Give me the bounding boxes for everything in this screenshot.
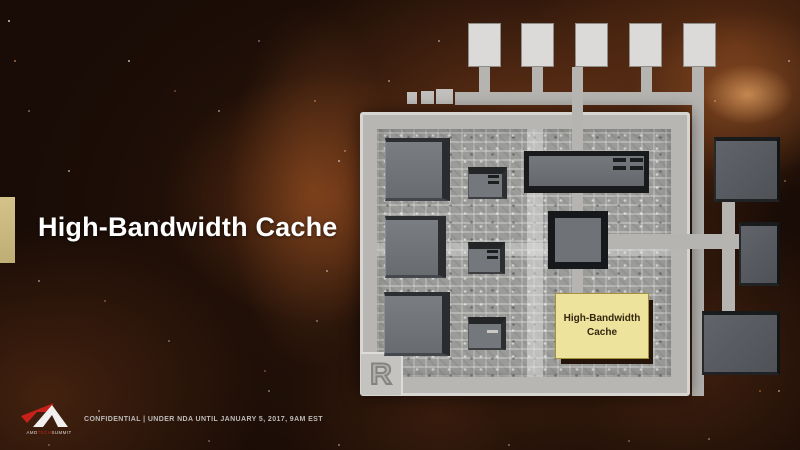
hbm-cache-label-line1: High-Bandwidth (564, 313, 641, 326)
die-block-wide (524, 151, 649, 193)
confidential-text: CONFIDENTIAL | UNDER NDA UNTIL JANUARY 5… (84, 416, 323, 423)
right-block-1 (714, 137, 780, 202)
die-block-large-2 (385, 216, 446, 278)
block-notch (613, 158, 626, 162)
logo-white-shape (33, 405, 68, 427)
block-notch (487, 330, 498, 333)
right-horizontal-trace (607, 234, 740, 249)
chip-pad-5 (683, 23, 716, 67)
block-notch (488, 181, 499, 184)
amd-tech-summit-logo: AMDTECHSUMMIT (18, 400, 80, 440)
right-block-2 (739, 222, 780, 286)
bus-square-2 (421, 91, 434, 104)
logo-caption: AMDTECHSUMMIT (26, 430, 71, 435)
hbm-cache-block: High-Bandwidth Cache (555, 293, 649, 359)
chip-pad-1 (468, 23, 501, 67)
bus-square-1 (407, 92, 417, 104)
hbm-cache-label-line2: Cache (587, 327, 617, 340)
block-notch (613, 166, 626, 170)
right-block-3 (702, 311, 780, 375)
pad-stem-2 (532, 67, 543, 93)
chip-pad-4 (629, 23, 662, 67)
accent-bar (0, 197, 15, 263)
block-notch (488, 175, 499, 178)
die-block-small-1 (468, 167, 507, 199)
radeon-corner-tab: R (361, 352, 403, 395)
radeon-r-mark: R (370, 358, 392, 392)
block-notch (487, 256, 498, 259)
chip-pad-2 (521, 23, 554, 67)
pad-stem-4 (641, 67, 652, 93)
die-block-large-3 (384, 292, 450, 356)
block-notch (630, 166, 643, 170)
right-block-vertical-trace (722, 201, 735, 312)
die-block-bordered (548, 211, 608, 269)
star-field-warm (14, 60, 16, 62)
die-block-small-2 (468, 242, 505, 274)
slide: High-Bandwidth Cache R (0, 0, 800, 450)
die-block-small-3 (468, 317, 506, 350)
bus-square-3 (436, 89, 453, 104)
block-notch (487, 250, 498, 253)
slide-title: High-Bandwidth Cache (38, 212, 338, 243)
star-field (8, 20, 10, 22)
pad-stem-1 (479, 67, 490, 93)
die-block-large-1 (385, 138, 450, 201)
block-notch (630, 158, 643, 162)
chip-pad-3 (575, 23, 608, 67)
